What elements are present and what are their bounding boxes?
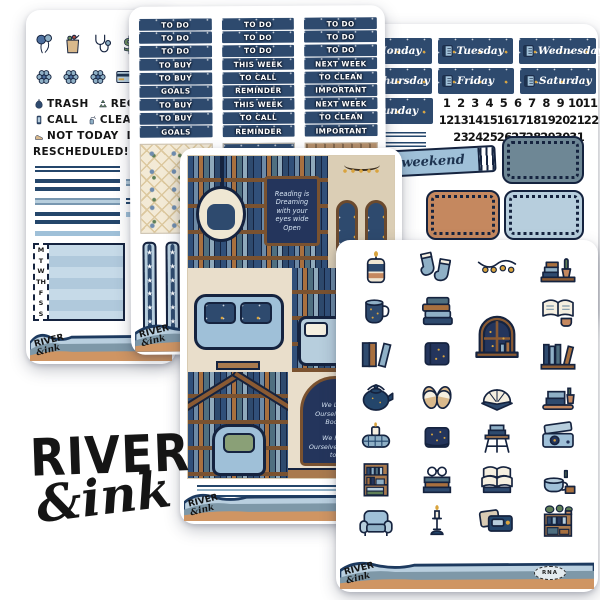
date-number: 20: [555, 113, 569, 127]
book-icon: [522, 44, 536, 58]
tray-books-icon: [538, 375, 578, 415]
sticker-kettle: [346, 374, 407, 416]
date-number: 3: [468, 96, 481, 110]
header-box: NEXT WEEK: [304, 57, 377, 70]
date-number: 7: [525, 96, 538, 110]
date-number: 24: [468, 130, 482, 144]
sticker-sheet-deco: RNA RIVER &ink: [336, 240, 598, 592]
star: ★: [146, 249, 152, 257]
record-player-icon: [538, 417, 578, 457]
bookcase-icon: [356, 459, 396, 499]
day-cover-tuesday: Tuesday: [438, 38, 514, 64]
sticker-wall-shelf: [528, 332, 589, 374]
day-row: ThursdayFridaySaturday: [356, 68, 596, 94]
date-number: 4: [483, 96, 496, 110]
book-icon: [441, 44, 455, 58]
header-box-columns: TO DOTO DOTO DOTO BUYTO BUYGOALSTO BUYTO…: [139, 17, 378, 139]
sticker-armchair: [346, 500, 407, 542]
fanned-book-icon: [477, 375, 517, 415]
date-number: 19: [540, 113, 554, 127]
date-number: 5: [497, 96, 510, 110]
word-label: TRASH: [47, 98, 89, 110]
open-books-icon: [477, 459, 517, 499]
book-pages: [477, 147, 494, 171]
scallop-label-sticker-blue: [504, 190, 584, 240]
header-box: THIS WEEK: [222, 98, 295, 111]
header-box: GOALS: [140, 125, 213, 138]
date-number: 23: [453, 130, 467, 144]
header-column: TO DOTO DOTO DOTO BUYTO BUYGOALSTO BUYTO…: [139, 18, 213, 139]
sticker-candlestick: [407, 500, 468, 542]
star: ★: [147, 304, 153, 312]
date-number: 25: [482, 130, 496, 144]
header-box: TO BUY: [139, 58, 212, 71]
star: ★: [169, 249, 175, 257]
starry-book-icon: [417, 417, 457, 457]
books-upright-icon: [356, 333, 396, 373]
header-box: TO DO: [139, 32, 212, 45]
header-box: TO DO: [304, 44, 377, 57]
header-box: THIS WEEK: [222, 58, 295, 71]
sticker-shelf-plant: [528, 248, 589, 290]
word-sticker: NOT TODAY: [33, 130, 119, 142]
hanging-chair: [196, 186, 246, 242]
tracker-day: TH: [35, 278, 47, 286]
sticker-open-book-mug: [528, 290, 589, 332]
tracker-panel: [49, 243, 125, 321]
coffee-table: [216, 361, 260, 370]
grocery-bag-icon: [61, 32, 84, 56]
header-box: TO DO: [304, 31, 377, 44]
radio-pillows-icon: [477, 501, 517, 541]
shelf-plant-icon: [538, 249, 578, 289]
header-box: TO DO: [222, 45, 295, 58]
tracker-day-letters: MTWTHFSS: [33, 243, 49, 321]
quote-text: Reading is Dreaming with your eyes wide …: [270, 190, 314, 233]
trash-bag-icon: [33, 98, 45, 110]
sticker-plant-bookcase: [528, 500, 589, 542]
candle-jar-icon: [356, 249, 396, 289]
scallop-label-sticker-tan: [426, 190, 500, 240]
header-box: TO BUY: [139, 72, 212, 85]
sticker-closed-book: [407, 332, 468, 374]
brand-logo: RIVER &ink: [30, 428, 190, 525]
tracker-day: T: [35, 257, 47, 265]
header-box: IMPORTANT: [305, 124, 378, 137]
phone-icon: [33, 114, 45, 126]
balloons-icon: [33, 32, 56, 56]
word-label: RESCHEDULED!: [33, 146, 129, 158]
sticker-record-player: [528, 416, 589, 458]
product-photo: MondayTuesdayWednesdayThursdayFridaySatu…: [0, 0, 600, 600]
word-sticker: RESCHEDULED!: [33, 146, 129, 158]
stool-books-icon: [477, 417, 517, 457]
header-box: TO DO: [222, 31, 295, 44]
book-icon: [441, 74, 455, 88]
shop-stamp-badge: RNA: [534, 566, 566, 580]
sticker-glasses-books: [407, 458, 468, 500]
blanket-icon: [356, 417, 396, 457]
date-number: 22: [584, 113, 598, 127]
date-number: 14: [468, 113, 482, 127]
recycle-icon: [97, 98, 109, 110]
teacup-stack-icon: [538, 459, 578, 499]
panel-attic-shelf: [188, 372, 288, 479]
flower-icon: [87, 66, 109, 88]
header-box: TO DO: [139, 45, 212, 58]
word-sticker: CALL: [33, 114, 78, 126]
armchair-icon: [356, 501, 396, 541]
stethoscope-icon: [90, 32, 113, 56]
kettle-icon: [356, 375, 396, 415]
sticker-mug: [346, 290, 407, 332]
plant-bookcase-icon: [538, 501, 578, 541]
day-cover-wednesday: Wednesday: [519, 38, 596, 64]
date-number: 15: [482, 113, 496, 127]
pillow: [304, 322, 328, 337]
chandelier: [344, 159, 380, 171]
date-number: 17: [511, 113, 525, 127]
window-icon: [471, 294, 523, 370]
header-box: REMINDER: [222, 85, 295, 98]
shoe-icon: [33, 130, 45, 142]
cushion: [240, 302, 272, 324]
candlestick-icon: [417, 501, 457, 541]
sticker-bookcase: [346, 458, 407, 500]
date-number: 18: [526, 113, 540, 127]
date-number: 9: [554, 96, 567, 110]
tracker-day: F: [35, 289, 47, 297]
panel-quote-board: Reading is Dreaming with your eyes wide …: [256, 156, 328, 268]
header-box: NEXT WEEK: [305, 98, 378, 111]
day-name: Wednesday: [538, 45, 600, 57]
sticker-starry-book: [407, 416, 468, 458]
star: ★: [147, 276, 153, 284]
header-box: TO CLEAN: [305, 71, 378, 84]
header-column: TO DOTO DOTO DONEXT WEEKTO CLEANIMPORTAN…: [304, 17, 378, 138]
sticker-stool-books: [467, 416, 528, 458]
panel-egg-chair: [188, 156, 256, 268]
open-book-mug-icon: [538, 291, 578, 331]
day-name: Friday: [457, 75, 494, 87]
panel-couch: [188, 268, 292, 372]
word-sticker: TRASH: [33, 98, 89, 110]
sticker-teacup-stack: [528, 458, 589, 500]
header-box: TO CALL: [222, 71, 295, 84]
word-label: CALL: [47, 114, 78, 126]
date-number: 6: [511, 96, 524, 110]
glasses-books-icon: [417, 459, 457, 499]
date-number: 13: [453, 113, 467, 127]
armchair: [212, 424, 266, 476]
sticker-books-upright: [346, 332, 407, 374]
chalkboard-quote: Reading is Dreaming with your eyes wide …: [264, 176, 320, 246]
word-label: NOT TODAY: [47, 130, 119, 142]
deco-sticker-grid: [346, 248, 588, 542]
header-box: GOALS: [139, 85, 212, 98]
sticker-radio-pillows: [467, 500, 528, 542]
day-cover-saturday: Saturday: [520, 68, 596, 94]
cushion: [204, 302, 236, 324]
date-number: 11: [582, 96, 596, 110]
tracker-day: S: [35, 310, 47, 318]
date-number: 21: [569, 113, 583, 127]
socks-icon: [417, 249, 457, 289]
sticker-candle-jar: [346, 248, 407, 290]
date-number: 8: [540, 96, 553, 110]
date-number-row: 1234567891011: [440, 96, 596, 110]
star: ★: [146, 263, 152, 271]
star: ★: [147, 290, 153, 298]
header-box: TO DO: [222, 18, 295, 31]
scallop-label-sticker-slate: [502, 136, 584, 184]
spray-icon: [86, 114, 98, 126]
mug-icon: [356, 291, 396, 331]
slippers-icon: [417, 375, 457, 415]
date-number: 12: [439, 113, 453, 127]
day-cover-friday: Friday: [438, 68, 514, 94]
header-box: TO BUY: [139, 99, 212, 112]
book-stack-icon: [417, 291, 457, 331]
day-name: Saturday: [539, 75, 592, 87]
tracker-day: W: [35, 267, 47, 275]
header-box: IMPORTANT: [305, 84, 378, 97]
sticker-book-stack: [407, 290, 468, 332]
date-number: 10: [568, 96, 582, 110]
header-column: TO DOTO DOTO DOTHIS WEEKTO CALLREMINDERT…: [222, 18, 296, 139]
star: ★: [170, 290, 176, 298]
sticker-open-books: [467, 458, 528, 500]
sticker-slippers: [407, 374, 468, 416]
string-lights-icon: [477, 249, 517, 289]
wall-shelf-icon: [538, 333, 578, 373]
book-icon: [523, 74, 537, 88]
star: ★: [169, 262, 175, 270]
tracker-day: M: [35, 246, 47, 254]
date-number: 1: [440, 96, 453, 110]
star: ★: [170, 276, 176, 284]
date-number-row: 1213141516171819202122: [440, 113, 596, 127]
sticker-window: [467, 290, 528, 374]
header-box: REMINDER: [222, 125, 295, 138]
header-box: TO CLEAN: [305, 111, 378, 124]
sticker-blanket: [346, 416, 407, 458]
star: ★: [170, 304, 176, 312]
day-row: MondayTuesdayWednesday: [356, 38, 596, 64]
date-number: 16: [497, 113, 511, 127]
flower-icon: [60, 66, 82, 88]
closed-book-icon: [417, 333, 457, 373]
habit-tracker-sticker: MTWTHFSS: [33, 243, 125, 321]
header-box: TO CALL: [222, 111, 295, 124]
header-box: TO BUY: [140, 112, 213, 125]
tracker-day: S: [35, 299, 47, 307]
roof-beam: [232, 372, 288, 415]
day-name: Tuesday: [457, 45, 504, 57]
sticker-string-lights: [467, 248, 528, 290]
sticker-tray-books: [528, 374, 589, 416]
header-box: TO DO: [139, 18, 212, 31]
sticker-fanned-book: [467, 374, 528, 416]
sticker-socks: [407, 248, 468, 290]
header-box: TO DO: [304, 17, 377, 30]
flower-icon: [33, 66, 55, 88]
date-number: 2: [454, 96, 467, 110]
